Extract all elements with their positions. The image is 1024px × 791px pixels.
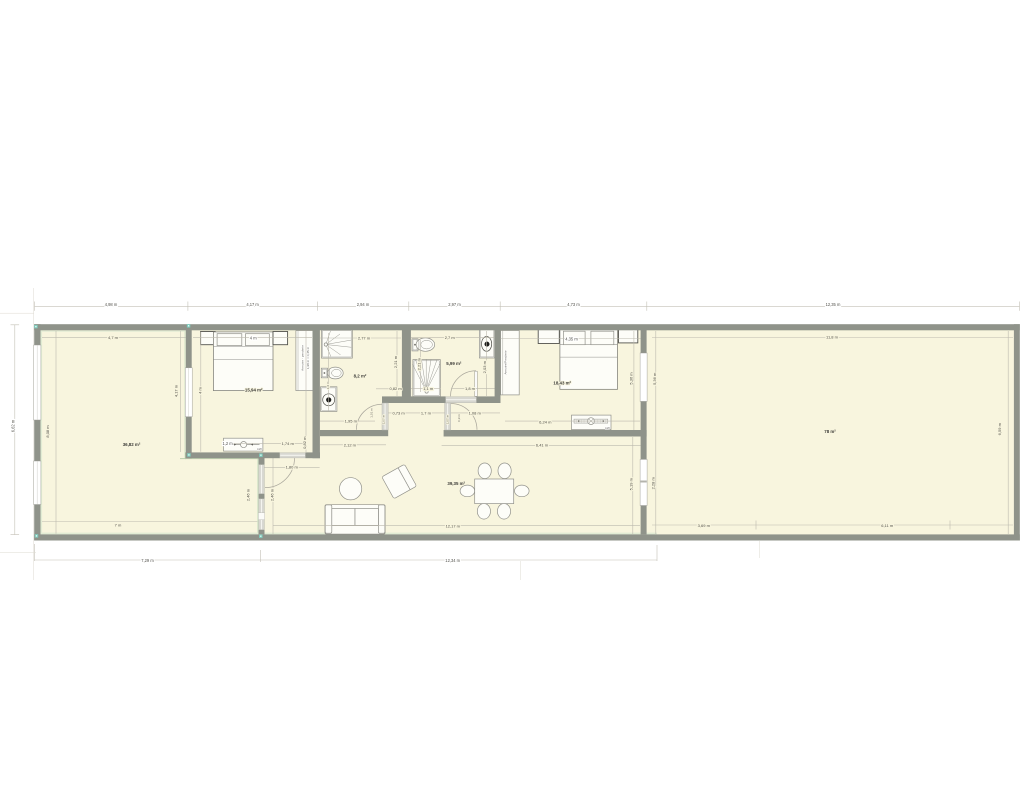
svg-text:6,41 m: 6,41 m	[536, 442, 549, 447]
svg-text:39,35 m²: 39,35 m²	[447, 481, 465, 486]
svg-text:2,7 m: 2,7 m	[445, 335, 456, 340]
svg-text:1,1 m: 1,1 m	[423, 386, 434, 391]
svg-text:4,17 m: 4,17 m	[174, 384, 179, 397]
svg-text:12,17 m: 12,17 m	[446, 524, 461, 529]
svg-text:0,9 m: 0,9 m	[457, 414, 461, 422]
svg-text:0,82 m: 0,82 m	[302, 436, 307, 449]
svg-text:15,94 m²: 15,94 m²	[245, 387, 263, 392]
svg-text:2,28 m: 2,28 m	[651, 477, 656, 490]
svg-text:Armoire - penderie: Armoire - penderie	[301, 345, 305, 371]
svg-text:12,35 m: 12,35 m	[826, 302, 841, 307]
svg-text:7,29 m: 7,29 m	[141, 558, 154, 563]
svg-text:1,07 m: 1,07 m	[381, 414, 385, 424]
svg-text:1,98 m × 0,45 m: 1,98 m × 0,45 m	[306, 346, 310, 369]
svg-text:11,8 m: 11,8 m	[826, 335, 839, 340]
svg-text:4 m: 4 m	[250, 336, 257, 341]
svg-text:Armoire/Penderie: Armoire/Penderie	[504, 350, 508, 374]
svg-text:1,80 m: 1,80 m	[286, 465, 299, 470]
svg-text:1,2 m: 1,2 m	[222, 441, 233, 446]
svg-text:2,21 m: 2,21 m	[393, 355, 398, 368]
svg-text:2,03 m: 2,03 m	[482, 360, 487, 373]
svg-text:36,82 m²: 36,82 m²	[123, 442, 141, 447]
svg-text:18,43 m²: 18,43 m²	[553, 380, 571, 385]
svg-text:1,08 m: 1,08 m	[469, 410, 482, 415]
svg-text:6,59 m: 6,59 m	[997, 422, 1002, 435]
svg-text:kW: kW	[605, 426, 610, 430]
svg-text:4,17 m: 4,17 m	[246, 302, 259, 307]
svg-text:2,77 m: 2,77 m	[358, 336, 371, 341]
svg-text:0,73 m: 0,73 m	[392, 410, 405, 415]
svg-text:7 m: 7 m	[115, 523, 122, 528]
svg-text:4,7 m: 4,7 m	[108, 335, 119, 340]
svg-text:2,46 m: 2,46 m	[270, 488, 275, 501]
svg-text:2,21 m: 2,21 m	[417, 357, 422, 370]
svg-text:6,24 m: 6,24 m	[539, 419, 552, 424]
svg-text:5,36 m: 5,36 m	[628, 372, 633, 385]
svg-text:0,82 m: 0,82 m	[389, 386, 402, 391]
svg-text:1,8 m: 1,8 m	[465, 386, 476, 391]
svg-text:5,36 m: 5,36 m	[652, 372, 657, 385]
svg-text:1,74 m: 1,74 m	[282, 441, 295, 446]
svg-text:4,98 m: 4,98 m	[105, 302, 118, 307]
svg-text:8,08 m: 8,08 m	[45, 425, 50, 438]
svg-text:5,99 m²: 5,99 m²	[446, 361, 462, 366]
svg-text:1,7 m: 1,7 m	[421, 410, 432, 415]
svg-text:12,34 m: 12,34 m	[445, 558, 460, 563]
svg-text:8,2 m²: 8,2 m²	[354, 374, 367, 379]
svg-text:4 m: 4 m	[198, 387, 203, 394]
svg-text:1,07 m: 1,07 m	[446, 414, 450, 424]
svg-text:78 m²: 78 m²	[824, 429, 836, 434]
svg-text:2,46 m: 2,46 m	[246, 488, 251, 501]
svg-text:1,3 m: 1,3 m	[326, 381, 330, 389]
svg-text:6,11 m: 6,11 m	[881, 523, 894, 528]
svg-text:5,19 m: 5,19 m	[629, 477, 634, 490]
svg-text:2,12 m: 2,12 m	[344, 443, 357, 448]
svg-text:1,01 m: 1,01 m	[369, 408, 373, 418]
svg-text:4,35 m: 4,35 m	[565, 336, 578, 341]
svg-text:6,62 m: 6,62 m	[11, 419, 16, 432]
svg-text:3,69 m: 3,69 m	[698, 523, 711, 528]
svg-text:2,97 m: 2,97 m	[448, 302, 461, 307]
svg-text:4,73 m: 4,73 m	[567, 302, 580, 307]
svg-text:1,95 m: 1,95 m	[345, 418, 358, 423]
svg-text:kW: kW	[257, 447, 262, 451]
svg-text:2,94 m: 2,94 m	[357, 302, 370, 307]
